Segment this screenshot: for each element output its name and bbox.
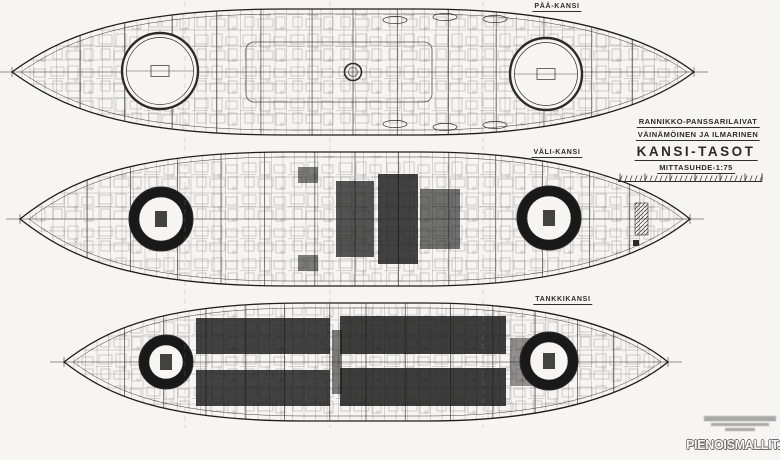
barbette-ring <box>517 186 581 250</box>
credit-line-2 <box>711 423 769 426</box>
credit-block <box>701 416 779 431</box>
barbette-ring <box>129 187 193 251</box>
deck-plan-paa-kansi <box>0 9 708 135</box>
title-block-title: KANSI-TASOT <box>635 144 758 161</box>
title-block-scale-note: MITTASUHDE-1:75 <box>657 163 735 174</box>
ship-deck-plans-drawing <box>0 0 780 460</box>
deck-plan-tankkikansi <box>50 303 682 421</box>
deck-plan-vali-kansi <box>6 152 704 286</box>
deck-label-vali-kansi: VÄLI-KANSI <box>531 149 582 158</box>
barbette-ring <box>520 332 578 390</box>
title-block-class-line: RANNIKKO-PANSSARILAIVAT <box>637 117 760 128</box>
barbette-ring <box>510 38 582 110</box>
deck-label-paa-kansi: PÄÄ-KANSI <box>532 3 581 12</box>
credit-line-1 <box>704 416 776 421</box>
title-block-ships-line: VÄINÄMÖINEN JA ILMARINEN <box>636 130 760 141</box>
credit-line-3 <box>725 428 755 431</box>
blueprint-sheet: PÄÄ-KANSI VÄLI-KANSI TANKKIKANSI RANNIKK… <box>0 0 780 460</box>
barbette-ring <box>122 33 198 109</box>
scale-ruler <box>618 174 762 182</box>
deck-label-tankkikansi: TANKKIKANSI <box>533 296 592 305</box>
watermark: PIENOISMALLIT.NET <box>686 438 780 452</box>
